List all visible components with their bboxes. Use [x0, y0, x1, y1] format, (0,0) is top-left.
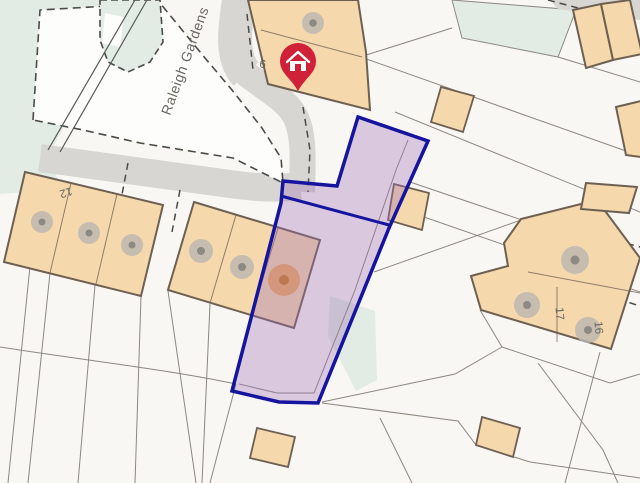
- plot-label-16: 16: [591, 321, 604, 335]
- green-area-top-center: [452, 0, 576, 57]
- outbuilding-1: [431, 87, 474, 132]
- outbuilding-4: [476, 417, 520, 457]
- outbuilding-3: [250, 428, 295, 467]
- map-svg[interactable]: Raleigh Gardens 9 12 17 16: [0, 0, 640, 483]
- building-block-17-16: [471, 200, 640, 349]
- road-surface-north: [235, 0, 246, 74]
- building-right-edge-b: [581, 183, 637, 213]
- plot-label-17: 17: [552, 307, 565, 321]
- plot-label-9: 9: [259, 57, 266, 70]
- map-canvas[interactable]: Raleigh Gardens 9 12 17 16: [0, 0, 640, 483]
